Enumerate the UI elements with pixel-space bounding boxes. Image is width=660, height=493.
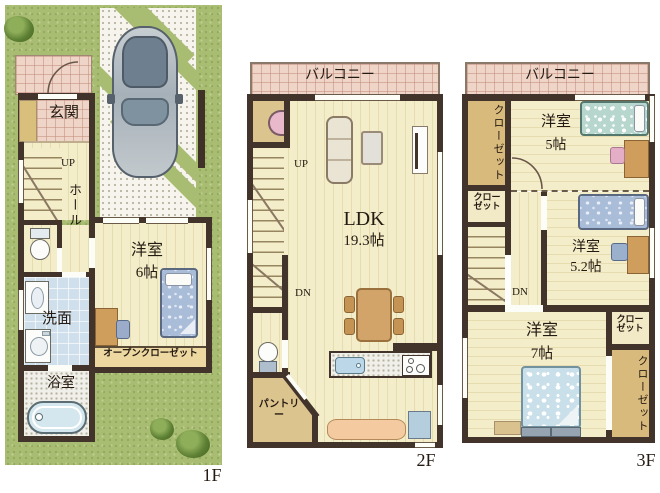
- car-mirror: [107, 94, 115, 104]
- chair: [610, 147, 625, 164]
- coffee-table: [361, 131, 383, 165]
- window: [437, 152, 443, 255]
- pillow: [634, 105, 645, 132]
- sofa: [326, 116, 353, 184]
- pantry-label: パントリー: [254, 400, 304, 421]
- room6-door: [89, 238, 95, 268]
- burner: [408, 358, 414, 364]
- chair: [344, 296, 355, 313]
- car-windshield: [121, 98, 169, 126]
- chair: [393, 318, 404, 335]
- burner: [406, 366, 413, 373]
- stairs-2f-dn: [253, 256, 282, 307]
- double-bed: [521, 366, 581, 428]
- blanket-fold: [558, 405, 578, 425]
- bedside-mat: [494, 421, 521, 435]
- window: [103, 217, 139, 224]
- tree-icon: [176, 430, 210, 458]
- closet-left-label: クローゼット: [470, 103, 503, 183]
- room6-name: 洋室: [122, 243, 172, 260]
- wall: [18, 436, 95, 442]
- hall-label: ホール: [64, 176, 81, 234]
- bathroom-label: 浴室: [36, 377, 86, 392]
- toilet-bowl: [30, 239, 50, 260]
- window: [206, 248, 212, 300]
- car-roof: [122, 36, 168, 88]
- wall: [393, 343, 437, 351]
- car-mirror: [175, 94, 183, 104]
- toilet-2f-door: [282, 340, 288, 368]
- desk: [95, 308, 118, 346]
- washroom-label: 洗面: [32, 312, 82, 328]
- room5-name: 洋室: [533, 115, 579, 131]
- tree-icon: [4, 16, 34, 42]
- tv-board: [412, 126, 428, 174]
- wall: [462, 305, 655, 312]
- washer-panel: [42, 331, 50, 336]
- kitchen-sink: [335, 357, 365, 374]
- toilet-tank: [30, 228, 50, 239]
- desk: [624, 140, 649, 178]
- entrance-door: [38, 94, 77, 99]
- bathtub: [27, 401, 87, 434]
- room5-size: 5帖: [539, 139, 573, 154]
- stair-break-line: [468, 271, 505, 305]
- tree-icon: [150, 418, 174, 440]
- window: [146, 217, 188, 224]
- toilet: [28, 228, 52, 260]
- kitchen-cabinet: [327, 419, 406, 440]
- window: [247, 200, 253, 253]
- washbasin: [25, 281, 49, 314]
- pillow: [634, 198, 645, 226]
- room52-name: 洋室: [564, 241, 608, 256]
- ldk-name: LDK: [334, 209, 394, 230]
- room7-size: 7帖: [524, 347, 560, 363]
- basin-bowl: [31, 287, 44, 309]
- window: [462, 338, 468, 398]
- closet-right-label: クローゼット: [614, 352, 647, 435]
- floor2-label: 2F: [406, 451, 446, 470]
- open-closet-label: オープンクローゼット: [95, 350, 206, 360]
- burner: [416, 364, 425, 373]
- room6-size: 6帖: [124, 266, 170, 282]
- toilet-2f: [256, 342, 280, 374]
- window: [649, 96, 655, 142]
- up-label: UP: [288, 159, 314, 171]
- chair: [393, 296, 404, 313]
- room7-door: [505, 305, 543, 312]
- stair-break-line: [253, 262, 282, 307]
- washing-machine: [25, 329, 51, 363]
- floor-plan-sheet: 玄関 UP ホール 洗面 浴室 洋室 6帖 オープンクローゼット 1F: [0, 0, 660, 493]
- window: [649, 228, 655, 278]
- dn-label: DN: [506, 287, 534, 299]
- dining-table: [356, 288, 392, 342]
- ldk-size: 19.3帖: [330, 234, 398, 250]
- car: [112, 26, 178, 178]
- window: [437, 385, 443, 425]
- balcony-2f-label: バルコニー: [285, 69, 395, 84]
- genkan-label: 玄関: [39, 106, 89, 122]
- desk: [627, 236, 649, 274]
- dn-label: DN: [290, 288, 316, 300]
- stairs-2f-up: [253, 148, 284, 256]
- shoe-cabinet: [19, 100, 37, 142]
- tv: [415, 133, 418, 169]
- stairs-3f: [468, 227, 505, 305]
- chair: [344, 318, 355, 335]
- bath-faucet: [35, 413, 43, 421]
- stove: [402, 355, 430, 376]
- room7-name: 洋室: [518, 323, 566, 340]
- wall: [312, 415, 318, 442]
- room52-size: 5.2帖: [560, 261, 612, 276]
- bed-base: [521, 427, 581, 437]
- kitchen-counter: [329, 351, 432, 378]
- chair: [611, 243, 628, 261]
- floor3-label: 3F: [626, 451, 660, 470]
- wall: [247, 442, 443, 448]
- window: [415, 442, 435, 448]
- wall: [284, 94, 290, 148]
- balcony-3f-label: バルコニー: [505, 69, 615, 84]
- refrigerator: [408, 411, 431, 439]
- room5-door-arc: [511, 156, 543, 190]
- blanket-fold: [180, 319, 195, 334]
- fence-bar: [198, 90, 205, 168]
- bed: [578, 194, 649, 230]
- window: [18, 160, 24, 203]
- bed: [580, 101, 649, 136]
- closet-top-label: クロー ゼット: [468, 193, 506, 212]
- balcony-door: [315, 94, 400, 101]
- washer-drum: [30, 337, 48, 356]
- balcony-window: [575, 94, 645, 101]
- closet-mid-label: クロー ゼット: [611, 315, 649, 334]
- up-label: UP: [55, 158, 81, 170]
- chair: [116, 320, 130, 339]
- wall: [282, 255, 288, 312]
- window: [18, 290, 24, 330]
- floor1-label: 1F: [192, 466, 232, 485]
- wall: [89, 367, 212, 373]
- toilet-bowl: [258, 342, 278, 362]
- stair-break-line: [253, 178, 284, 253]
- wall: [462, 437, 655, 443]
- faucet: [356, 363, 361, 368]
- entrance-door-arc: [46, 58, 80, 96]
